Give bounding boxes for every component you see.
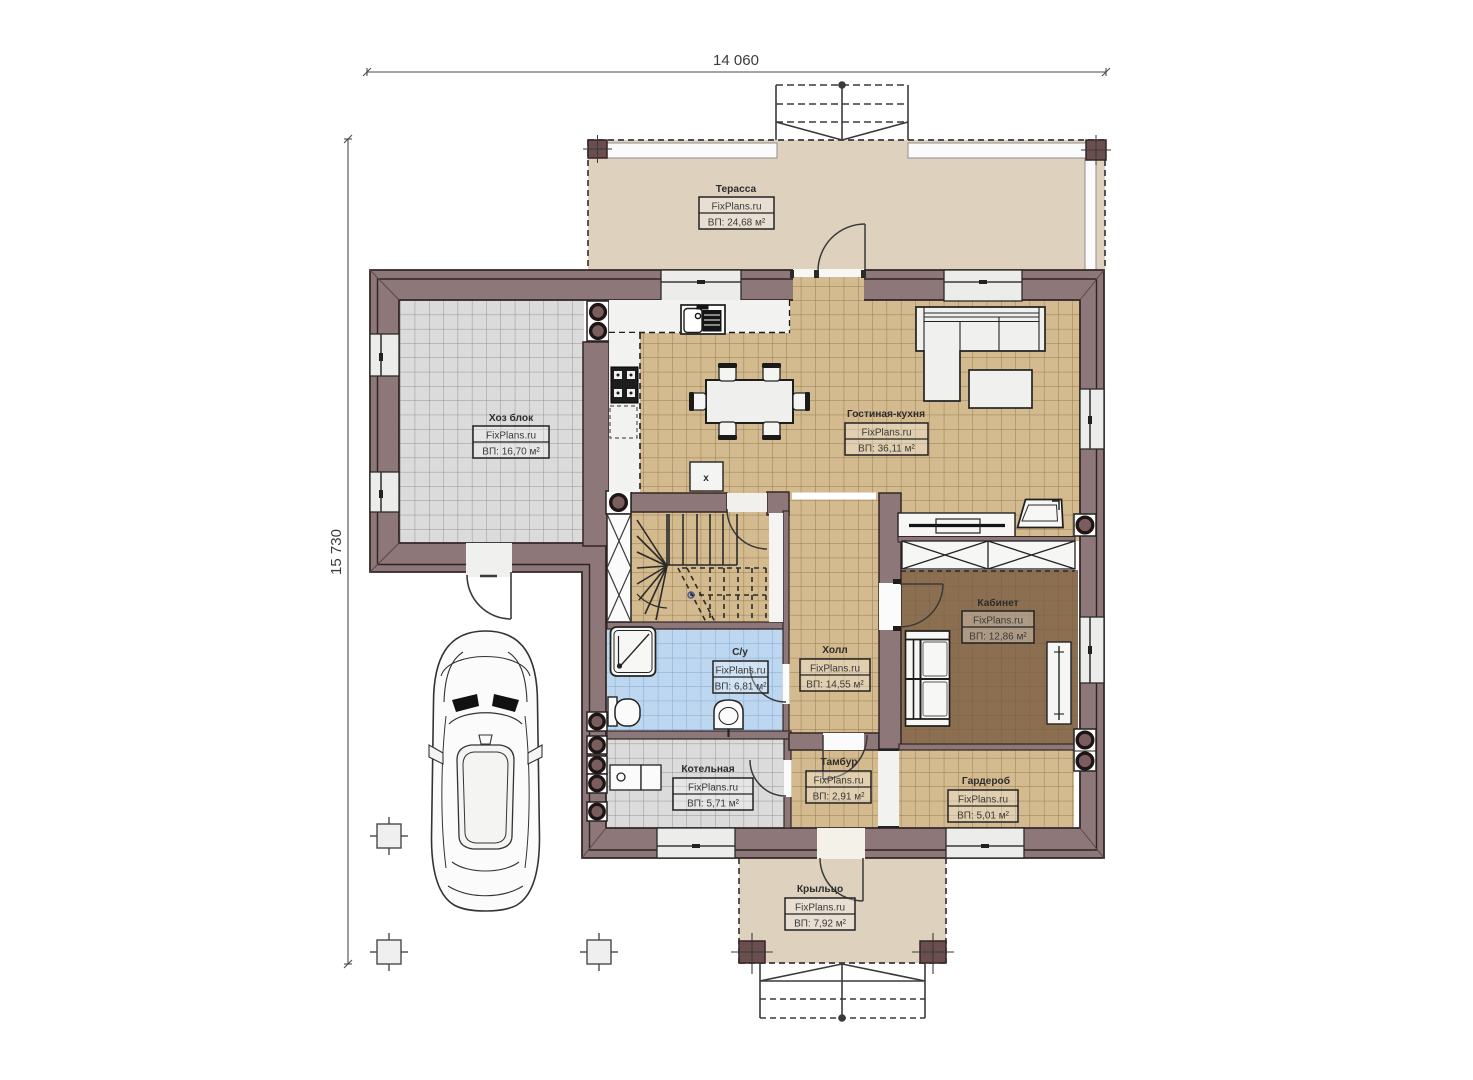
svg-text:FixPlans.ru: FixPlans.ru	[795, 903, 845, 914]
svg-text:ВП: 2,91 м²: ВП: 2,91 м²	[813, 792, 866, 803]
svg-text:ВП: 14,55 м²: ВП: 14,55 м²	[806, 680, 864, 691]
svg-text:15 730: 15 730	[328, 529, 345, 575]
svg-text:Терасса: Терасса	[716, 184, 757, 195]
svg-text:ВП: 24,68 м²: ВП: 24,68 м²	[708, 218, 766, 229]
svg-text:Холл: Холл	[822, 645, 848, 656]
svg-text:Тамбур: Тамбур	[821, 756, 858, 768]
svg-text:14 060: 14 060	[713, 52, 759, 69]
svg-text:ВП: 6,81 м²: ВП: 6,81 м²	[715, 682, 768, 693]
svg-text:С/у: С/у	[732, 647, 748, 658]
svg-text:FixPlans.ru: FixPlans.ru	[861, 428, 911, 439]
svg-text:ВП: 5,01 м²: ВП: 5,01 м²	[957, 811, 1010, 822]
svg-text:ВП: 16,70 м²: ВП: 16,70 м²	[482, 447, 540, 458]
svg-text:FixPlans.ru: FixPlans.ru	[813, 776, 863, 787]
svg-text:x: x	[703, 473, 709, 484]
svg-text:FixPlans.ru: FixPlans.ru	[958, 795, 1008, 806]
svg-text:FixPlans.ru: FixPlans.ru	[810, 664, 860, 675]
svg-text:FixPlans.ru: FixPlans.ru	[715, 666, 765, 677]
svg-text:Гостиная-кухня: Гостиная-кухня	[847, 409, 925, 420]
svg-text:Хоз блок: Хоз блок	[489, 412, 534, 424]
svg-text:FixPlans.ru: FixPlans.ru	[711, 202, 761, 213]
svg-text:ВП: 5,71 м²: ВП: 5,71 м²	[687, 799, 740, 810]
svg-text:Кабинет: Кабинет	[977, 597, 1018, 609]
svg-text:Котельная: Котельная	[681, 764, 734, 775]
svg-text:Крыльцо: Крыльцо	[797, 884, 843, 895]
svg-text:FixPlans.ru: FixPlans.ru	[486, 431, 536, 442]
svg-text:Гардероб: Гардероб	[962, 775, 1010, 787]
svg-text:ВП: 7,92 м²: ВП: 7,92 м²	[794, 919, 847, 930]
svg-text:ВП: 36,11 м²: ВП: 36,11 м²	[858, 444, 915, 455]
svg-text:FixPlans.ru: FixPlans.ru	[688, 783, 738, 794]
svg-text:FixPlans.ru: FixPlans.ru	[973, 616, 1023, 627]
svg-text:ВП: 12,86 м²: ВП: 12,86 м²	[969, 632, 1027, 643]
